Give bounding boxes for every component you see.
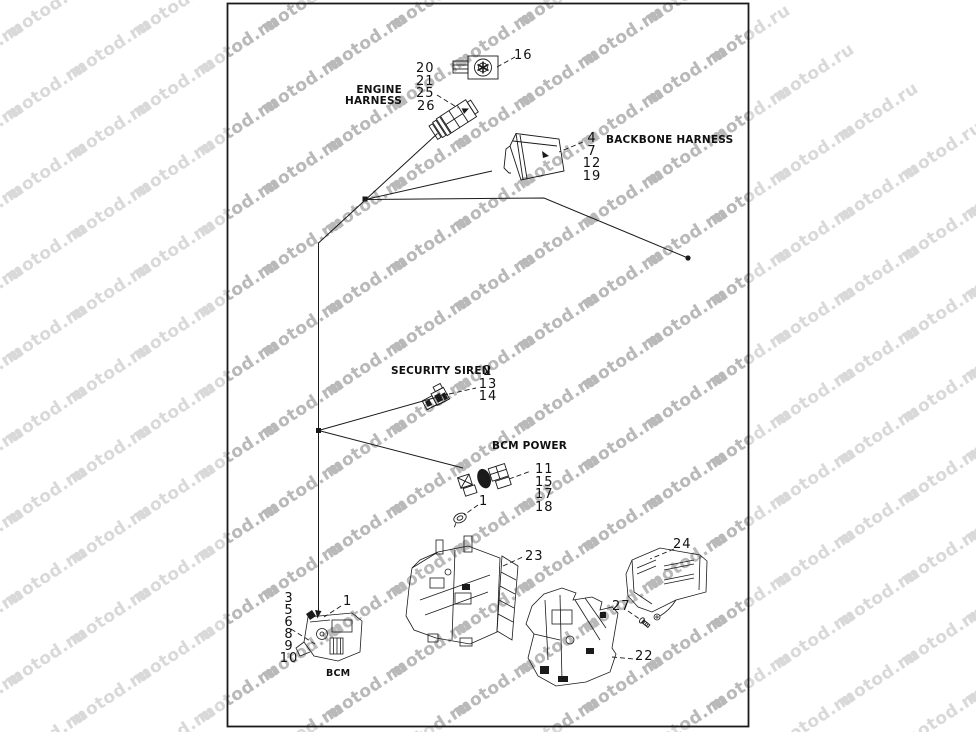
- line-end-dot: [685, 255, 690, 260]
- callout-24: 24: [673, 538, 692, 551]
- callout-10: 10: [279, 652, 299, 665]
- bcm-power-label: BCM POWER: [492, 441, 567, 452]
- cover24-drawing: [626, 548, 707, 620]
- screw27-drawing: [638, 617, 650, 629]
- callout-16: 16: [514, 49, 533, 62]
- security-siren-label: SECURITY SIREN: [391, 366, 491, 377]
- connector16-drawing: [453, 56, 498, 79]
- arrowhead: [315, 610, 322, 619]
- security-siren-connector-drawing: [419, 383, 450, 411]
- bcm-module-drawing: [296, 610, 362, 661]
- bcm-label: BCM: [326, 669, 350, 679]
- backbone-harness-connector-drawing: [504, 134, 564, 181]
- junction-markers: [315, 197, 691, 619]
- grommet-drawing: [450, 511, 468, 527]
- callout-23: 23: [525, 550, 544, 563]
- bracket22-drawing: [526, 588, 618, 686]
- callout-1-grommet: 1: [479, 495, 488, 508]
- engine-harness-label-line2: HARNESS: [336, 96, 402, 107]
- callout-26: 26: [417, 100, 436, 113]
- harness-routing-lines: [319, 134, 689, 612]
- leader-lines: [291, 57, 674, 659]
- callout-19: 19: [582, 170, 602, 183]
- backbone-harness-label: BACKBONE HARNESS: [606, 135, 733, 146]
- parts-diagram-page: motod.rumotod.rumotod.rumotod.rumotod.ru…: [0, 0, 976, 732]
- callout-22: 22: [635, 650, 654, 663]
- engine-harness-label-line1: ENGINE: [336, 85, 402, 96]
- callout-1-bcm: 1: [343, 595, 352, 608]
- junction-dot: [316, 428, 321, 433]
- callout-14: 14: [477, 390, 499, 403]
- bracket23-drawing: [406, 536, 518, 646]
- callout-18: 18: [535, 501, 554, 514]
- junction-dot: [363, 197, 368, 202]
- orientation-arrow: [542, 151, 549, 158]
- callout-27: 27: [612, 600, 631, 613]
